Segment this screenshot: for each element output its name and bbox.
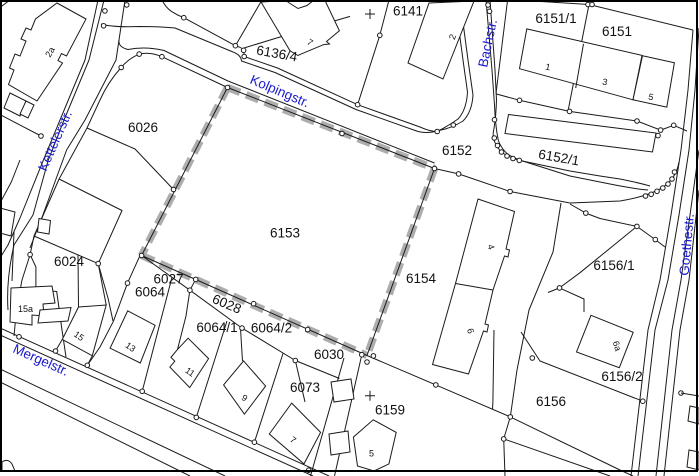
svg-text:6141: 6141 [393,4,423,19]
svg-text:6064/1: 6064/1 [196,320,237,335]
svg-text:15a: 15a [18,304,33,314]
svg-text:6030: 6030 [314,347,344,362]
svg-text:6153: 6153 [270,226,300,241]
svg-text:6151/1: 6151/1 [535,11,576,26]
svg-text:6152: 6152 [442,143,472,158]
svg-text:6156/2: 6156/2 [601,369,642,384]
svg-text:6151: 6151 [602,24,632,39]
svg-text:6064: 6064 [135,285,166,300]
svg-text:6154: 6154 [406,271,437,286]
svg-text:6064/2: 6064/2 [251,321,292,336]
svg-text:6073: 6073 [290,380,320,395]
svg-text:6159: 6159 [375,403,405,418]
svg-text:6026: 6026 [128,120,158,135]
svg-text:6156: 6156 [536,394,566,409]
svg-text:6024: 6024 [54,254,85,269]
svg-text:6156/1: 6156/1 [593,258,634,273]
svg-text:5: 5 [369,449,374,459]
